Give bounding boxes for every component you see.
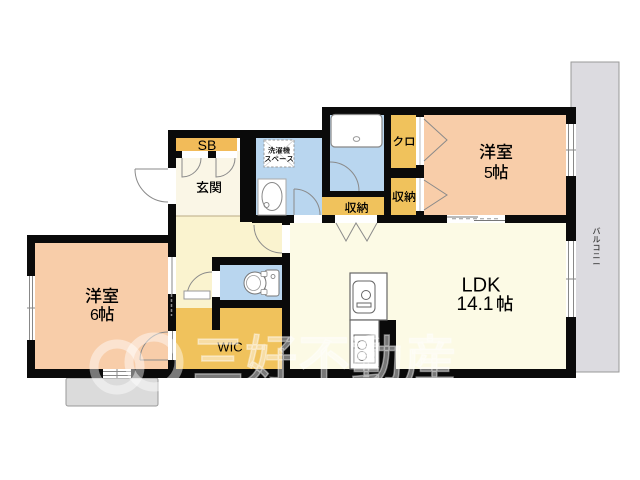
svg-text:14.1: 14.1 [457, 294, 494, 315]
svg-text:5: 5 [484, 165, 493, 182]
svg-text:SB: SB [198, 137, 217, 153]
svg-text:6: 6 [90, 307, 99, 324]
